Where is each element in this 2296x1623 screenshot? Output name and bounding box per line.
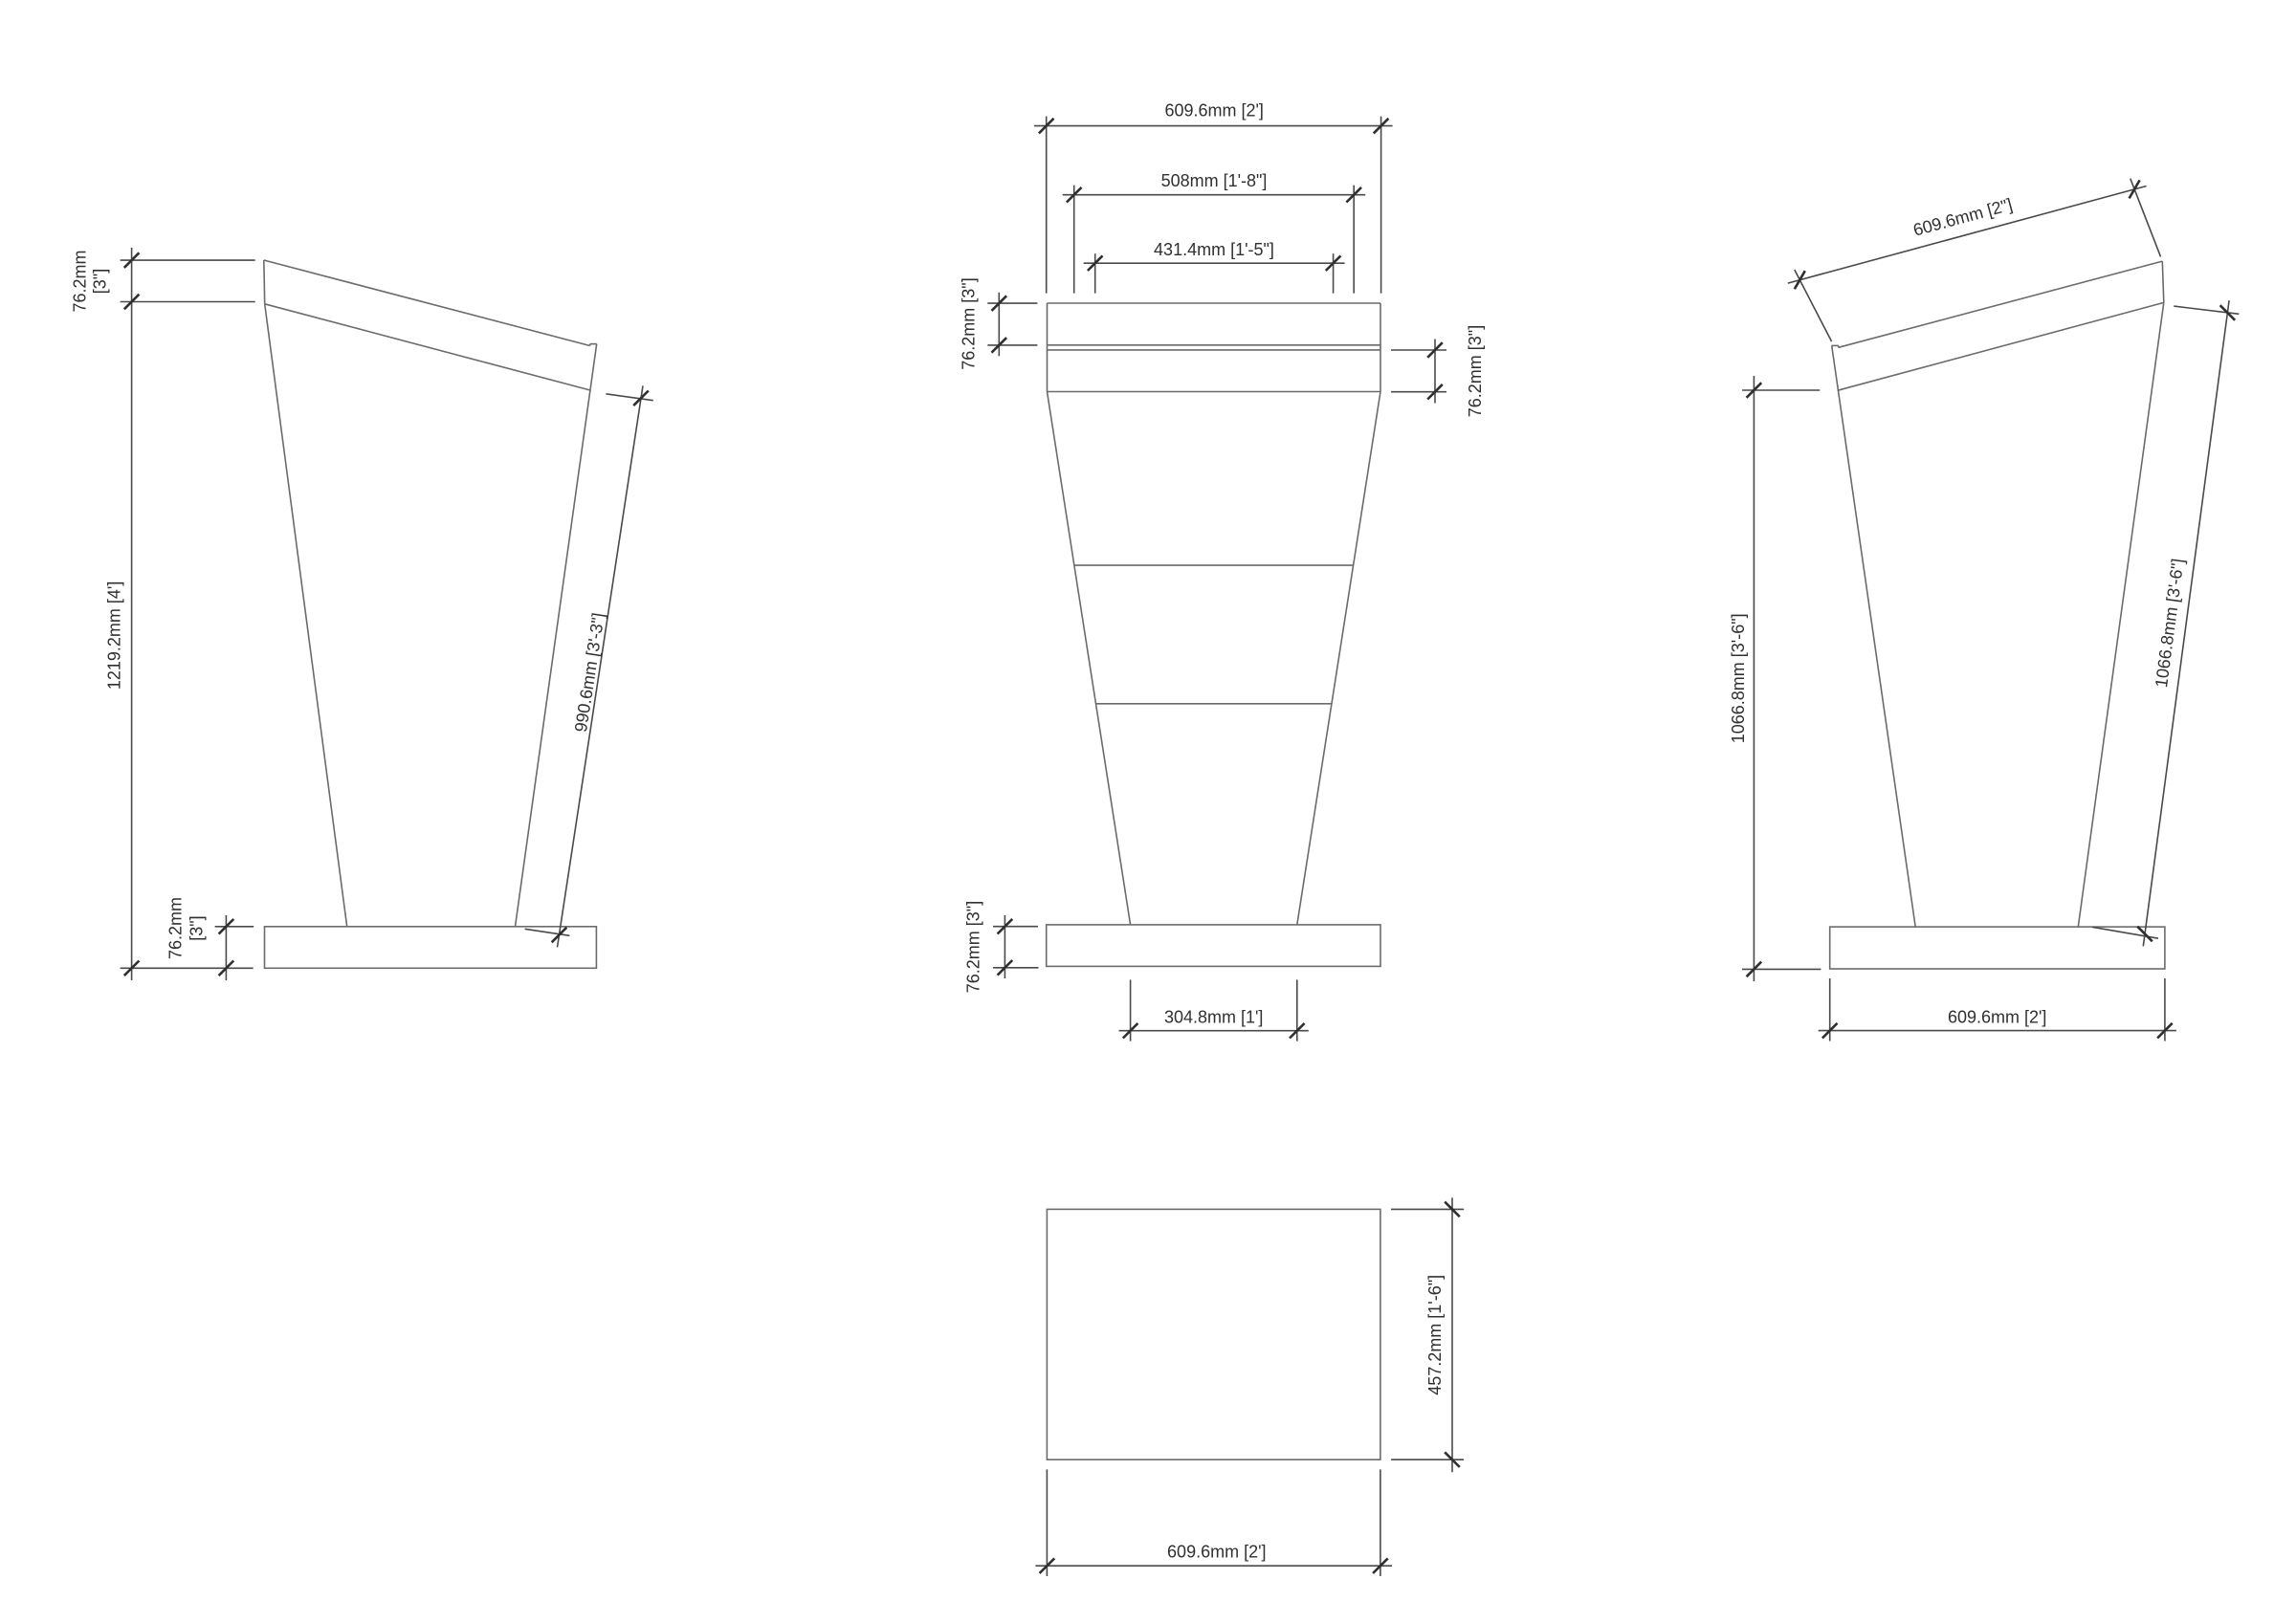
svg-text:431.4mm [1'-5"]: 431.4mm [1'-5"] bbox=[1154, 240, 1274, 259]
svg-text:609.6mm [2']: 609.6mm [2'] bbox=[1167, 1543, 1266, 1562]
svg-text:1219.2mm [4']: 1219.2mm [4'] bbox=[105, 581, 124, 691]
svg-text:76.2mm: 76.2mm bbox=[166, 897, 185, 959]
svg-text:609.6mm [2"]: 609.6mm [2"] bbox=[1911, 195, 2015, 240]
svg-text:609.6mm [2']: 609.6mm [2'] bbox=[1164, 101, 1263, 121]
svg-text:304.8mm [1']: 304.8mm [1'] bbox=[1164, 1008, 1263, 1027]
svg-text:1066.8mm [3'-6"]: 1066.8mm [3'-6"] bbox=[1729, 613, 1748, 743]
svg-text:1066.8mm [3'-6"]: 1066.8mm [3'-6"] bbox=[2152, 558, 2188, 689]
svg-text:457.2mm [1'-6"]: 457.2mm [1'-6"] bbox=[1425, 1275, 1445, 1395]
svg-text:76.2mm [3"]: 76.2mm [3"] bbox=[1466, 325, 1485, 417]
svg-text:76.2mm [3"]: 76.2mm [3"] bbox=[960, 277, 979, 369]
svg-text:609.6mm [2']: 609.6mm [2'] bbox=[1948, 1008, 2046, 1027]
svg-text:[3"]: [3"] bbox=[90, 269, 109, 294]
svg-text:76.2mm: 76.2mm bbox=[70, 250, 89, 312]
svg-text:[3"]: [3"] bbox=[188, 915, 207, 940]
svg-text:508mm [1'-8"]: 508mm [1'-8"] bbox=[1161, 171, 1268, 190]
svg-text:76.2mm [3"]: 76.2mm [3"] bbox=[964, 901, 983, 993]
svg-text:990.6mm [3'-3"]: 990.6mm [3'-3"] bbox=[571, 611, 608, 733]
